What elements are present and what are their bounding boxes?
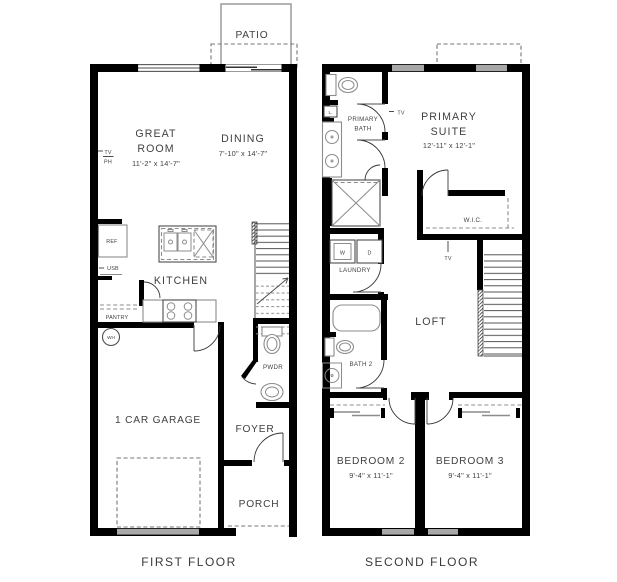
loft-label: LOFT — [415, 316, 446, 328]
laundry-label: LAUNDRY — [339, 267, 371, 274]
bedroom3-door-arc — [427, 398, 453, 424]
stair-railing — [478, 290, 483, 356]
pwdr-label: PWDR — [263, 364, 283, 371]
dining-label: DINING — [221, 133, 265, 145]
first-floor-plan: PATIO GRE — [90, 4, 297, 569]
bedroom2-window — [382, 529, 414, 535]
svg-text:PH: PH — [104, 160, 112, 166]
linen-label: L. — [329, 110, 333, 115]
washer-label: W — [340, 251, 346, 257]
garage-door — [117, 529, 199, 535]
patio-sliding-door — [223, 64, 285, 72]
primary-bath-label-2: BATH — [354, 126, 371, 133]
bedroom2-door-arc — [389, 398, 415, 424]
bath2: BATH 2 — [323, 305, 385, 388]
toilet — [262, 327, 282, 354]
wic-label: W.I.C. — [464, 217, 483, 224]
shower-door-arc — [365, 165, 380, 180]
tv-ph-wall-tag: TV PH — [98, 150, 114, 166]
bath2-label: BATH 2 — [349, 361, 372, 368]
suite-door-arc — [422, 170, 448, 196]
kitchen-label: KITCHEN — [154, 275, 208, 287]
double-vanity — [323, 122, 342, 177]
foyer-label: FOYER — [235, 424, 274, 435]
tub — [333, 305, 380, 331]
dining-dims: 7'-10" x 14'-7" — [219, 149, 268, 158]
porch-label: PORCH — [239, 499, 280, 510]
svg-text:TV: TV — [104, 150, 111, 156]
great-room-label-2: ROOM — [137, 143, 174, 155]
primary-bath-label-1: PRIMARY — [348, 116, 378, 123]
pantry-label: PANTRY — [106, 315, 129, 321]
second-floor-plan: L. PRIMARY BATH TV — [322, 44, 530, 569]
car-space-outline — [117, 458, 200, 527]
great-room-dims: 11'-2" x 14'-7" — [132, 159, 180, 168]
garage-label: 1 CAR GARAGE — [115, 415, 201, 426]
range — [143, 300, 216, 322]
stairs-first-floor — [252, 222, 289, 318]
kitchen-island — [159, 226, 216, 262]
bath-door-arc-2 — [357, 140, 385, 168]
bedroom2-label: BEDROOM 2 — [337, 456, 405, 467]
bedroom3-window — [428, 529, 458, 535]
toilet — [326, 75, 358, 96]
stairs-second-floor — [478, 252, 522, 356]
patio-label: PATIO — [235, 30, 268, 41]
great-room-label-1: GREAT — [135, 128, 176, 140]
floorplan-drawing: PATIO GRE — [0, 0, 617, 582]
tv-tag-lower: TV — [444, 256, 451, 262]
ref-label: REF — [106, 239, 118, 245]
primary-suite-label-1: PRIMARY — [421, 111, 477, 123]
garage-door-arc — [194, 325, 220, 351]
stair-railing — [252, 222, 257, 244]
pwdr-angled-wall — [241, 360, 258, 379]
usb-label: USB — [107, 266, 119, 272]
great-room-window — [136, 64, 203, 72]
bedroom3-closet — [458, 405, 522, 418]
dryer-label: D — [367, 251, 371, 257]
front-door — [254, 433, 283, 462]
first-floor-caption: FIRST FLOOR — [141, 555, 237, 569]
toilet — [325, 338, 354, 356]
suite-window-2 — [476, 65, 507, 71]
primary-suite-label-2: SUITE — [431, 126, 468, 138]
laundry: W D LAUNDRY — [330, 240, 382, 292]
floorplan-canvas: PATIO GRE — [0, 0, 617, 582]
bedroom2-dims: 9'-4" x 11'-1" — [349, 471, 393, 480]
powder-room: PWDR — [242, 325, 289, 401]
bedroom3-label: BEDROOM 3 — [436, 456, 504, 467]
tv-tag-upper: TV — [397, 111, 404, 117]
bedroom2-closet — [330, 405, 385, 418]
pwdr-sink — [261, 384, 283, 401]
primary-bath: L. PRIMARY BATH — [323, 75, 386, 227]
suite-window — [392, 65, 424, 71]
second-floor-caption: SECOND FLOOR — [365, 555, 479, 569]
primary-suite-dims: 12'-11" x 12'-1" — [423, 141, 475, 150]
bedroom3-dims: 9'-4" x 11'-1" — [448, 471, 492, 480]
wh-label: WH — [107, 335, 115, 340]
